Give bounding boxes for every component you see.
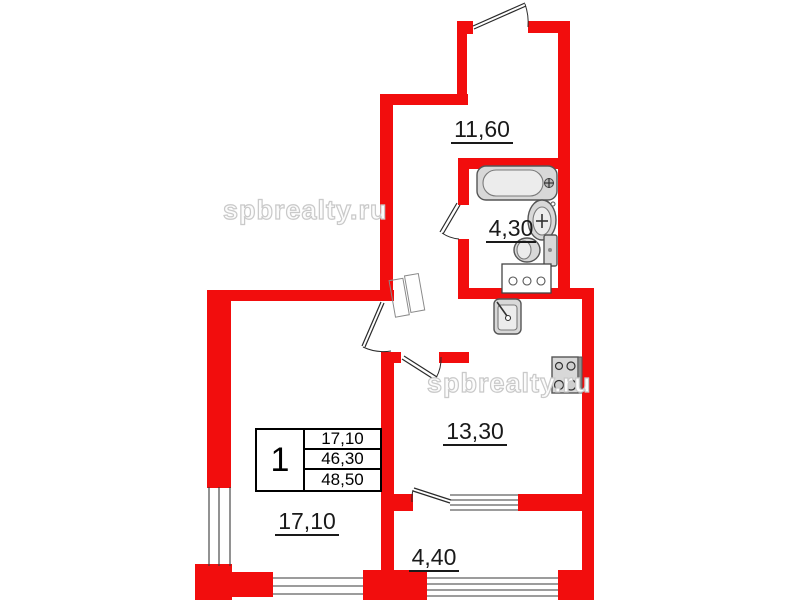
kitchen-window: [450, 495, 518, 510]
apartment-info-table: 1 17,10 46,30 48,50: [255, 428, 382, 492]
room-label-hallway: 11,60: [437, 117, 527, 144]
bathroom-door: [440, 203, 460, 239]
watermark: spbrealty.ru: [427, 368, 592, 399]
kitchen-sink: [494, 299, 521, 334]
info-table-value: 48,50: [305, 470, 380, 490]
info-table-room-count: 1: [257, 430, 305, 490]
room-label-balcony: 4,40: [389, 545, 479, 572]
washing-machine: [502, 264, 551, 293]
floor-plan-drawing: [0, 0, 800, 600]
wardrobe: [389, 274, 425, 318]
room-label-kitchen: 13,30: [430, 419, 520, 446]
entrance-door: [473, 3, 528, 29]
room-label-bathroom: 4,30: [466, 216, 556, 243]
balcony-glazing: [427, 578, 558, 596]
room-label-living-room: 17,10: [262, 509, 352, 536]
window-left: [209, 487, 230, 566]
balcony-door: [412, 488, 451, 503]
info-table-value: 46,30: [305, 450, 380, 470]
info-table-value: 17,10: [305, 430, 380, 450]
watermark: spbrealty.ru: [223, 195, 388, 226]
bathtub: [477, 166, 557, 200]
window-living-bottom: [273, 578, 363, 594]
living-room-door: [362, 302, 391, 352]
floor-plan: 11,60 4,30 13,30 17,10 4,40 1 17,10 46,3…: [0, 0, 800, 600]
